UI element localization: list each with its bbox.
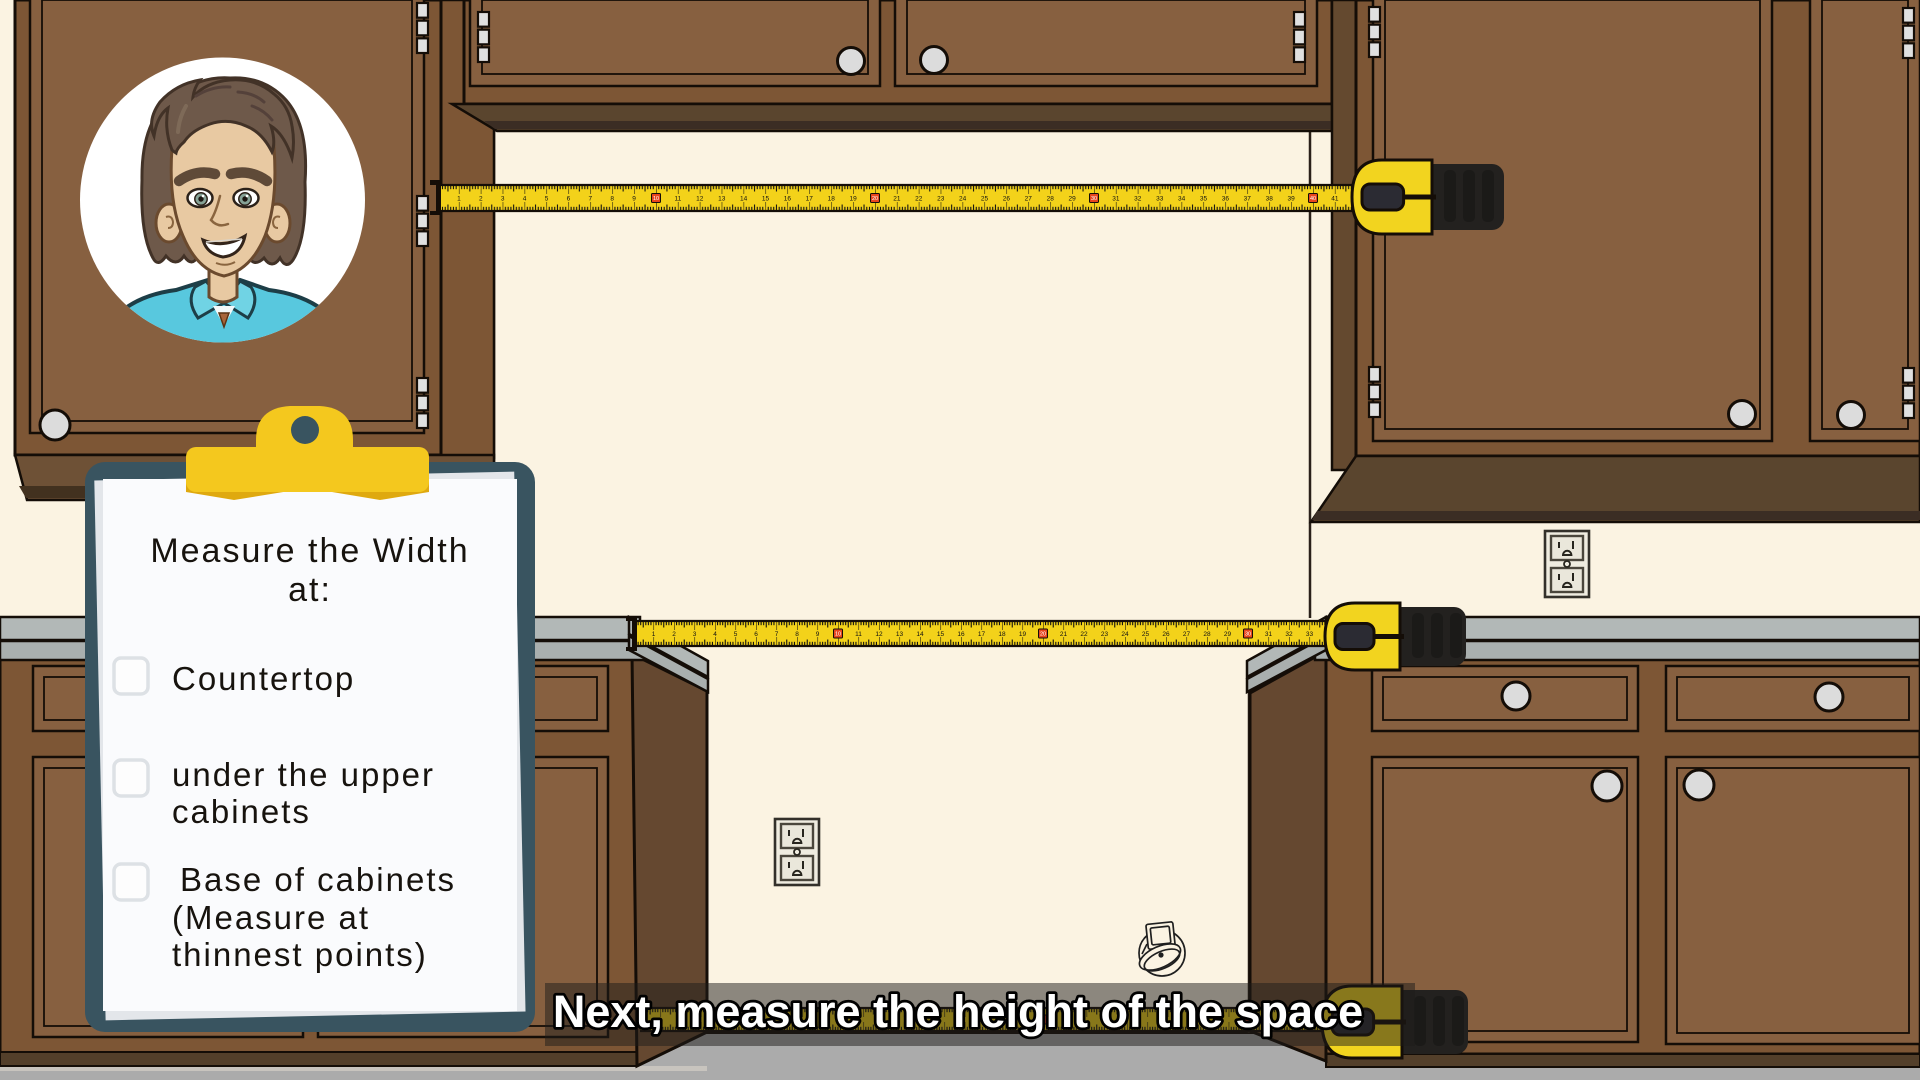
- svg-text:27: 27: [1183, 631, 1191, 638]
- svg-text:8: 8: [610, 196, 614, 203]
- svg-text:9: 9: [632, 196, 636, 203]
- svg-text:cabinets: cabinets: [172, 793, 311, 830]
- svg-text:2: 2: [672, 631, 676, 638]
- svg-text:36: 36: [1222, 196, 1230, 203]
- svg-text:10: 10: [835, 632, 841, 638]
- svg-text:13: 13: [896, 631, 904, 638]
- svg-text:6: 6: [567, 196, 571, 203]
- svg-text:thinnest points): thinnest points): [172, 936, 428, 973]
- svg-text:16: 16: [784, 196, 792, 203]
- svg-text:19: 19: [849, 196, 857, 203]
- svg-text:7: 7: [775, 631, 779, 638]
- svg-text:12: 12: [696, 196, 704, 203]
- svg-text:20: 20: [872, 196, 878, 202]
- svg-text:26: 26: [1003, 196, 1011, 203]
- svg-text:8: 8: [795, 631, 799, 638]
- svg-text:6: 6: [754, 631, 758, 638]
- svg-text:34: 34: [1178, 196, 1186, 203]
- svg-text:25: 25: [981, 196, 989, 203]
- svg-text:27: 27: [1025, 196, 1033, 203]
- svg-text:30: 30: [1245, 632, 1251, 638]
- svg-text:7: 7: [588, 196, 592, 203]
- svg-text:38: 38: [1266, 196, 1274, 203]
- svg-text:21: 21: [893, 196, 901, 203]
- svg-text:17: 17: [806, 196, 814, 203]
- svg-text:5: 5: [734, 631, 738, 638]
- svg-text:31: 31: [1265, 631, 1273, 638]
- svg-text:37: 37: [1244, 196, 1252, 203]
- svg-text:Next, measure the height of th: Next, measure the height of the space: [553, 986, 1363, 1037]
- svg-text:26: 26: [1162, 631, 1170, 638]
- svg-text:2: 2: [479, 196, 483, 203]
- svg-text:4: 4: [523, 196, 527, 203]
- svg-text:1: 1: [457, 196, 461, 203]
- svg-text:10: 10: [653, 196, 659, 202]
- svg-text:23: 23: [937, 196, 945, 203]
- svg-text:18: 18: [828, 196, 836, 203]
- svg-text:13: 13: [718, 196, 726, 203]
- svg-text:5: 5: [545, 196, 549, 203]
- svg-text:39: 39: [1287, 196, 1295, 203]
- svg-text:1: 1: [652, 631, 656, 638]
- svg-text:14: 14: [916, 631, 924, 638]
- svg-text:22: 22: [1080, 631, 1088, 638]
- svg-text:Base of cabinets: Base of cabinets: [180, 861, 456, 898]
- svg-text:3: 3: [693, 631, 697, 638]
- svg-text:24: 24: [1121, 631, 1129, 638]
- svg-text:20: 20: [1040, 632, 1046, 638]
- svg-text:Countertop: Countertop: [172, 660, 355, 697]
- svg-text:40: 40: [1310, 196, 1316, 202]
- svg-text:29: 29: [1224, 631, 1232, 638]
- svg-text:15: 15: [762, 196, 770, 203]
- svg-text:33: 33: [1156, 196, 1164, 203]
- svg-text:(Measure at: (Measure at: [172, 899, 370, 936]
- svg-text:9: 9: [816, 631, 820, 638]
- svg-text:12: 12: [875, 631, 883, 638]
- svg-text:28: 28: [1047, 196, 1055, 203]
- svg-text:30: 30: [1091, 196, 1097, 202]
- svg-text:3: 3: [501, 196, 505, 203]
- svg-text:22: 22: [915, 196, 923, 203]
- svg-text:24: 24: [959, 196, 967, 203]
- svg-text:32: 32: [1134, 196, 1142, 203]
- svg-text:17: 17: [978, 631, 986, 638]
- svg-text:28: 28: [1203, 631, 1211, 638]
- svg-text:11: 11: [855, 631, 862, 638]
- svg-text:31: 31: [1112, 196, 1120, 203]
- svg-text:23: 23: [1101, 631, 1109, 638]
- svg-text:21: 21: [1060, 631, 1068, 638]
- svg-text:11: 11: [675, 196, 682, 203]
- svg-text:41: 41: [1331, 196, 1339, 203]
- svg-text:14: 14: [740, 196, 748, 203]
- svg-text:Measure the Width: Measure the Width: [150, 532, 469, 570]
- svg-text:at:: at:: [288, 571, 332, 609]
- svg-text:25: 25: [1142, 631, 1150, 638]
- svg-text:under the upper: under the upper: [172, 756, 435, 793]
- svg-text:32: 32: [1285, 631, 1293, 638]
- svg-text:35: 35: [1200, 196, 1208, 203]
- svg-text:18: 18: [998, 631, 1006, 638]
- svg-text:16: 16: [957, 631, 965, 638]
- svg-text:15: 15: [937, 631, 945, 638]
- svg-text:29: 29: [1068, 196, 1076, 203]
- svg-text:19: 19: [1019, 631, 1027, 638]
- svg-text:33: 33: [1306, 631, 1314, 638]
- svg-text:4: 4: [713, 631, 717, 638]
